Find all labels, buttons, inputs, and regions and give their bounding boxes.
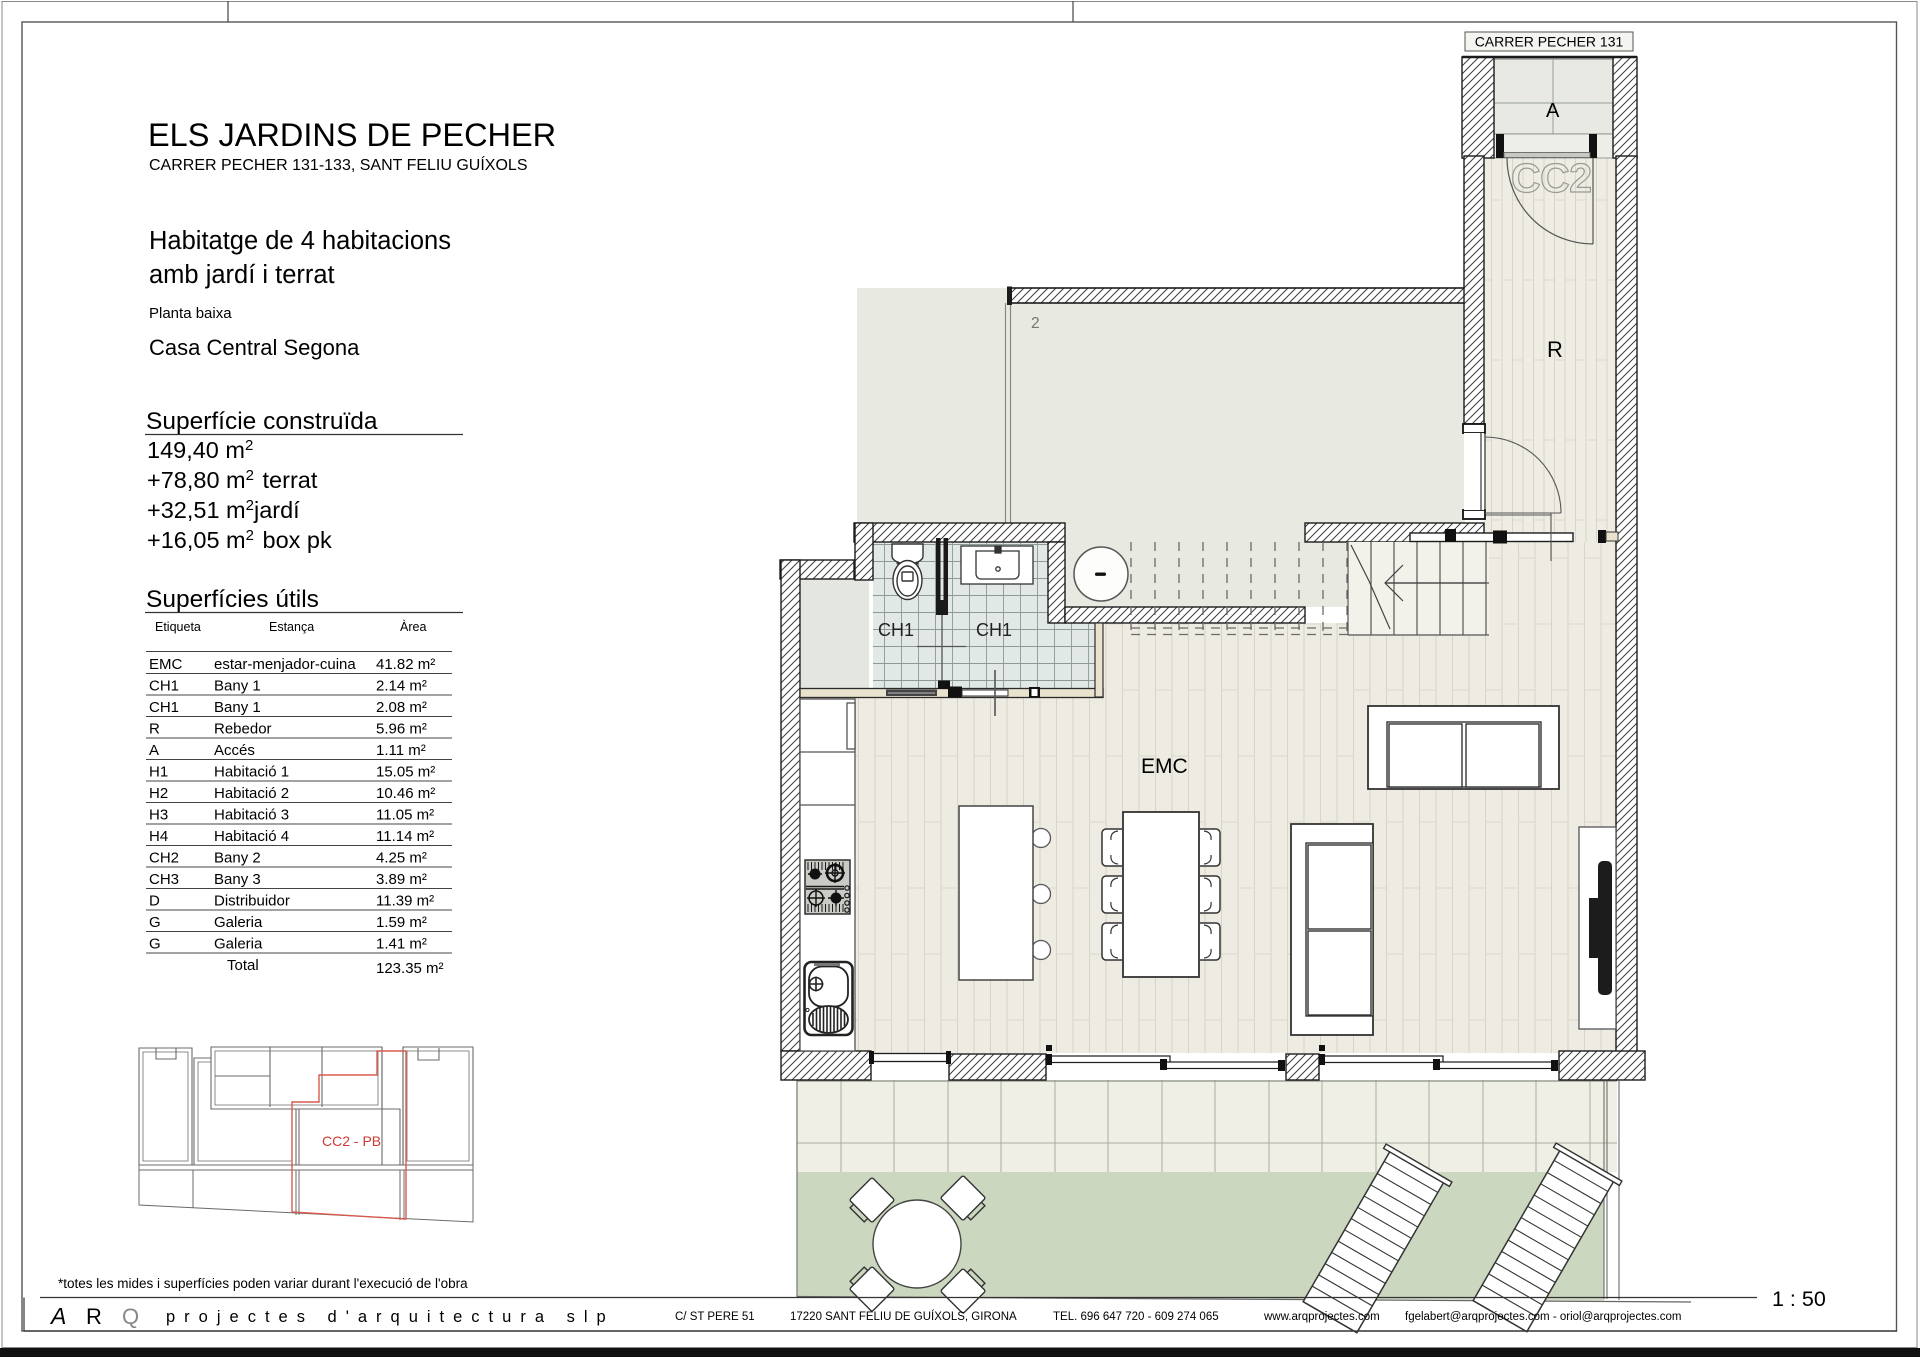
svg-text:11.39 m²: 11.39 m² xyxy=(376,893,434,910)
svg-text:Rebedor: Rebedor xyxy=(214,721,272,738)
svg-text:amb jardí i terrat: amb jardí i terrat xyxy=(149,261,335,289)
svg-text:Àrea: Àrea xyxy=(400,619,426,634)
svg-text:estar-menjador-cuina: estar-menjador-cuina xyxy=(214,656,356,673)
svg-text:CH1: CH1 xyxy=(976,620,1012,640)
svg-text:11.05 m²: 11.05 m² xyxy=(376,807,434,824)
svg-text:Habitatge de 4 habitacions: Habitatge de 4 habitacions xyxy=(149,227,451,255)
svg-text:Habitació 1: Habitació 1 xyxy=(214,764,289,781)
svg-text:R: R xyxy=(149,721,160,738)
svg-text:H3: H3 xyxy=(149,807,168,824)
svg-text:2.14 m²: 2.14 m² xyxy=(376,678,427,695)
svg-text:CH1: CH1 xyxy=(149,678,179,695)
svg-text:projectes d'arquitectura slp: projectes d'arquitectura slp xyxy=(166,1308,615,1326)
svg-text:H2: H2 xyxy=(149,785,168,802)
svg-text:C/ ST PERE 51: C/ ST PERE 51 xyxy=(675,1311,755,1323)
svg-text:Casa Central Segona: Casa Central Segona xyxy=(149,335,360,360)
svg-text:Bany 1: Bany 1 xyxy=(214,699,261,716)
svg-text:Habitació 3: Habitació 3 xyxy=(214,807,289,824)
svg-text:17220 SANT FELIU DE GUÍXOLS, G: 17220 SANT FELIU DE GUÍXOLS, GIRONA xyxy=(790,1310,1017,1323)
svg-text:1.59 m²: 1.59 m² xyxy=(376,914,427,931)
svg-text:+78,80 m2 terrat: +78,80 m2 terrat xyxy=(147,467,318,493)
svg-text:G: G xyxy=(149,936,161,953)
svg-text:ELS JARDINS DE PECHER: ELS JARDINS DE PECHER xyxy=(148,117,556,153)
svg-text:*totes les mides i superfícies: *totes les mides i superfícies poden var… xyxy=(58,1276,468,1291)
svg-text:CC2: CC2 xyxy=(1511,155,1592,201)
svg-text:Q: Q xyxy=(122,1304,139,1329)
svg-text:CH3: CH3 xyxy=(149,871,179,888)
svg-text:15.05 m²: 15.05 m² xyxy=(376,764,435,781)
svg-text:www.arqprojectes.com: www.arqprojectes.com xyxy=(1263,1311,1380,1323)
svg-text:Superfícies útils: Superfícies útils xyxy=(146,586,319,613)
svg-text:1.41 m²: 1.41 m² xyxy=(376,936,427,953)
svg-text:3.89 m²: 3.89 m² xyxy=(376,871,427,888)
svg-text:Estança: Estança xyxy=(269,620,314,634)
svg-text:Accés: Accés xyxy=(214,742,255,759)
svg-text:CH1: CH1 xyxy=(149,699,179,716)
svg-text:CC2 - PB: CC2 - PB xyxy=(322,1133,381,1149)
svg-text:1 : 50: 1 : 50 xyxy=(1772,1287,1826,1311)
svg-text:Habitació 2: Habitació 2 xyxy=(214,785,289,802)
svg-text:fgelabert@arqprojectes.com - o: fgelabert@arqprojectes.com - oriol@arqpr… xyxy=(1405,1311,1681,1323)
svg-text:+16,05 m2 box pk: +16,05 m2 box pk xyxy=(147,527,332,553)
svg-text:G: G xyxy=(149,914,161,931)
svg-text:A: A xyxy=(1546,100,1560,122)
svg-text:Bany 3: Bany 3 xyxy=(214,871,261,888)
svg-text:H1: H1 xyxy=(149,764,168,781)
svg-text:Galeria: Galeria xyxy=(214,914,263,931)
svg-text:41.82 m²: 41.82 m² xyxy=(376,656,435,673)
svg-text:EMC: EMC xyxy=(1141,755,1188,778)
svg-text:Superfície construïda: Superfície construïda xyxy=(146,408,378,435)
svg-text:CH1: CH1 xyxy=(878,620,914,640)
svg-text:R: R xyxy=(1547,337,1563,362)
svg-text:1.11 m²: 1.11 m² xyxy=(376,742,426,759)
svg-text:2.08 m²: 2.08 m² xyxy=(376,699,427,716)
svg-text:11.14 m²: 11.14 m² xyxy=(376,828,434,845)
svg-text:+32,51 m2jardí: +32,51 m2jardí xyxy=(147,497,300,523)
svg-text:Planta baixa: Planta baixa xyxy=(149,305,232,322)
svg-text:A: A xyxy=(149,742,159,759)
svg-text:A: A xyxy=(49,1303,66,1329)
svg-text:CARRER PECHER 131: CARRER PECHER 131 xyxy=(1475,34,1624,50)
svg-text:EMC: EMC xyxy=(149,656,183,673)
svg-text:Habitació 4: Habitació 4 xyxy=(214,828,289,845)
svg-text:Bany 2: Bany 2 xyxy=(214,850,261,867)
svg-text:D: D xyxy=(149,893,160,910)
svg-text:4.25 m²: 4.25 m² xyxy=(376,850,427,867)
svg-text:5.96 m²: 5.96 m² xyxy=(376,721,427,738)
svg-text:H4: H4 xyxy=(149,828,168,845)
svg-text:Galeria: Galeria xyxy=(214,936,263,953)
svg-text:Total: Total xyxy=(227,957,259,974)
svg-text:149,40 m2: 149,40 m2 xyxy=(147,437,253,463)
svg-text:2: 2 xyxy=(1031,315,1040,332)
svg-text:Etiqueta: Etiqueta xyxy=(155,620,201,634)
svg-text:CH2: CH2 xyxy=(149,850,179,867)
svg-text:TEL. 696 647 720 - 609 274 065: TEL. 696 647 720 - 609 274 065 xyxy=(1053,1311,1219,1323)
svg-text:10.46 m²: 10.46 m² xyxy=(376,785,435,802)
svg-text:Distribuidor: Distribuidor xyxy=(214,893,290,910)
svg-text:CARRER PECHER 131-133, SANT FE: CARRER PECHER 131-133, SANT FELIU GUÍXOL… xyxy=(149,155,528,174)
svg-text:Bany 1: Bany 1 xyxy=(214,678,261,695)
svg-text:123.35 m²: 123.35 m² xyxy=(376,960,444,977)
svg-text:R: R xyxy=(86,1304,102,1329)
